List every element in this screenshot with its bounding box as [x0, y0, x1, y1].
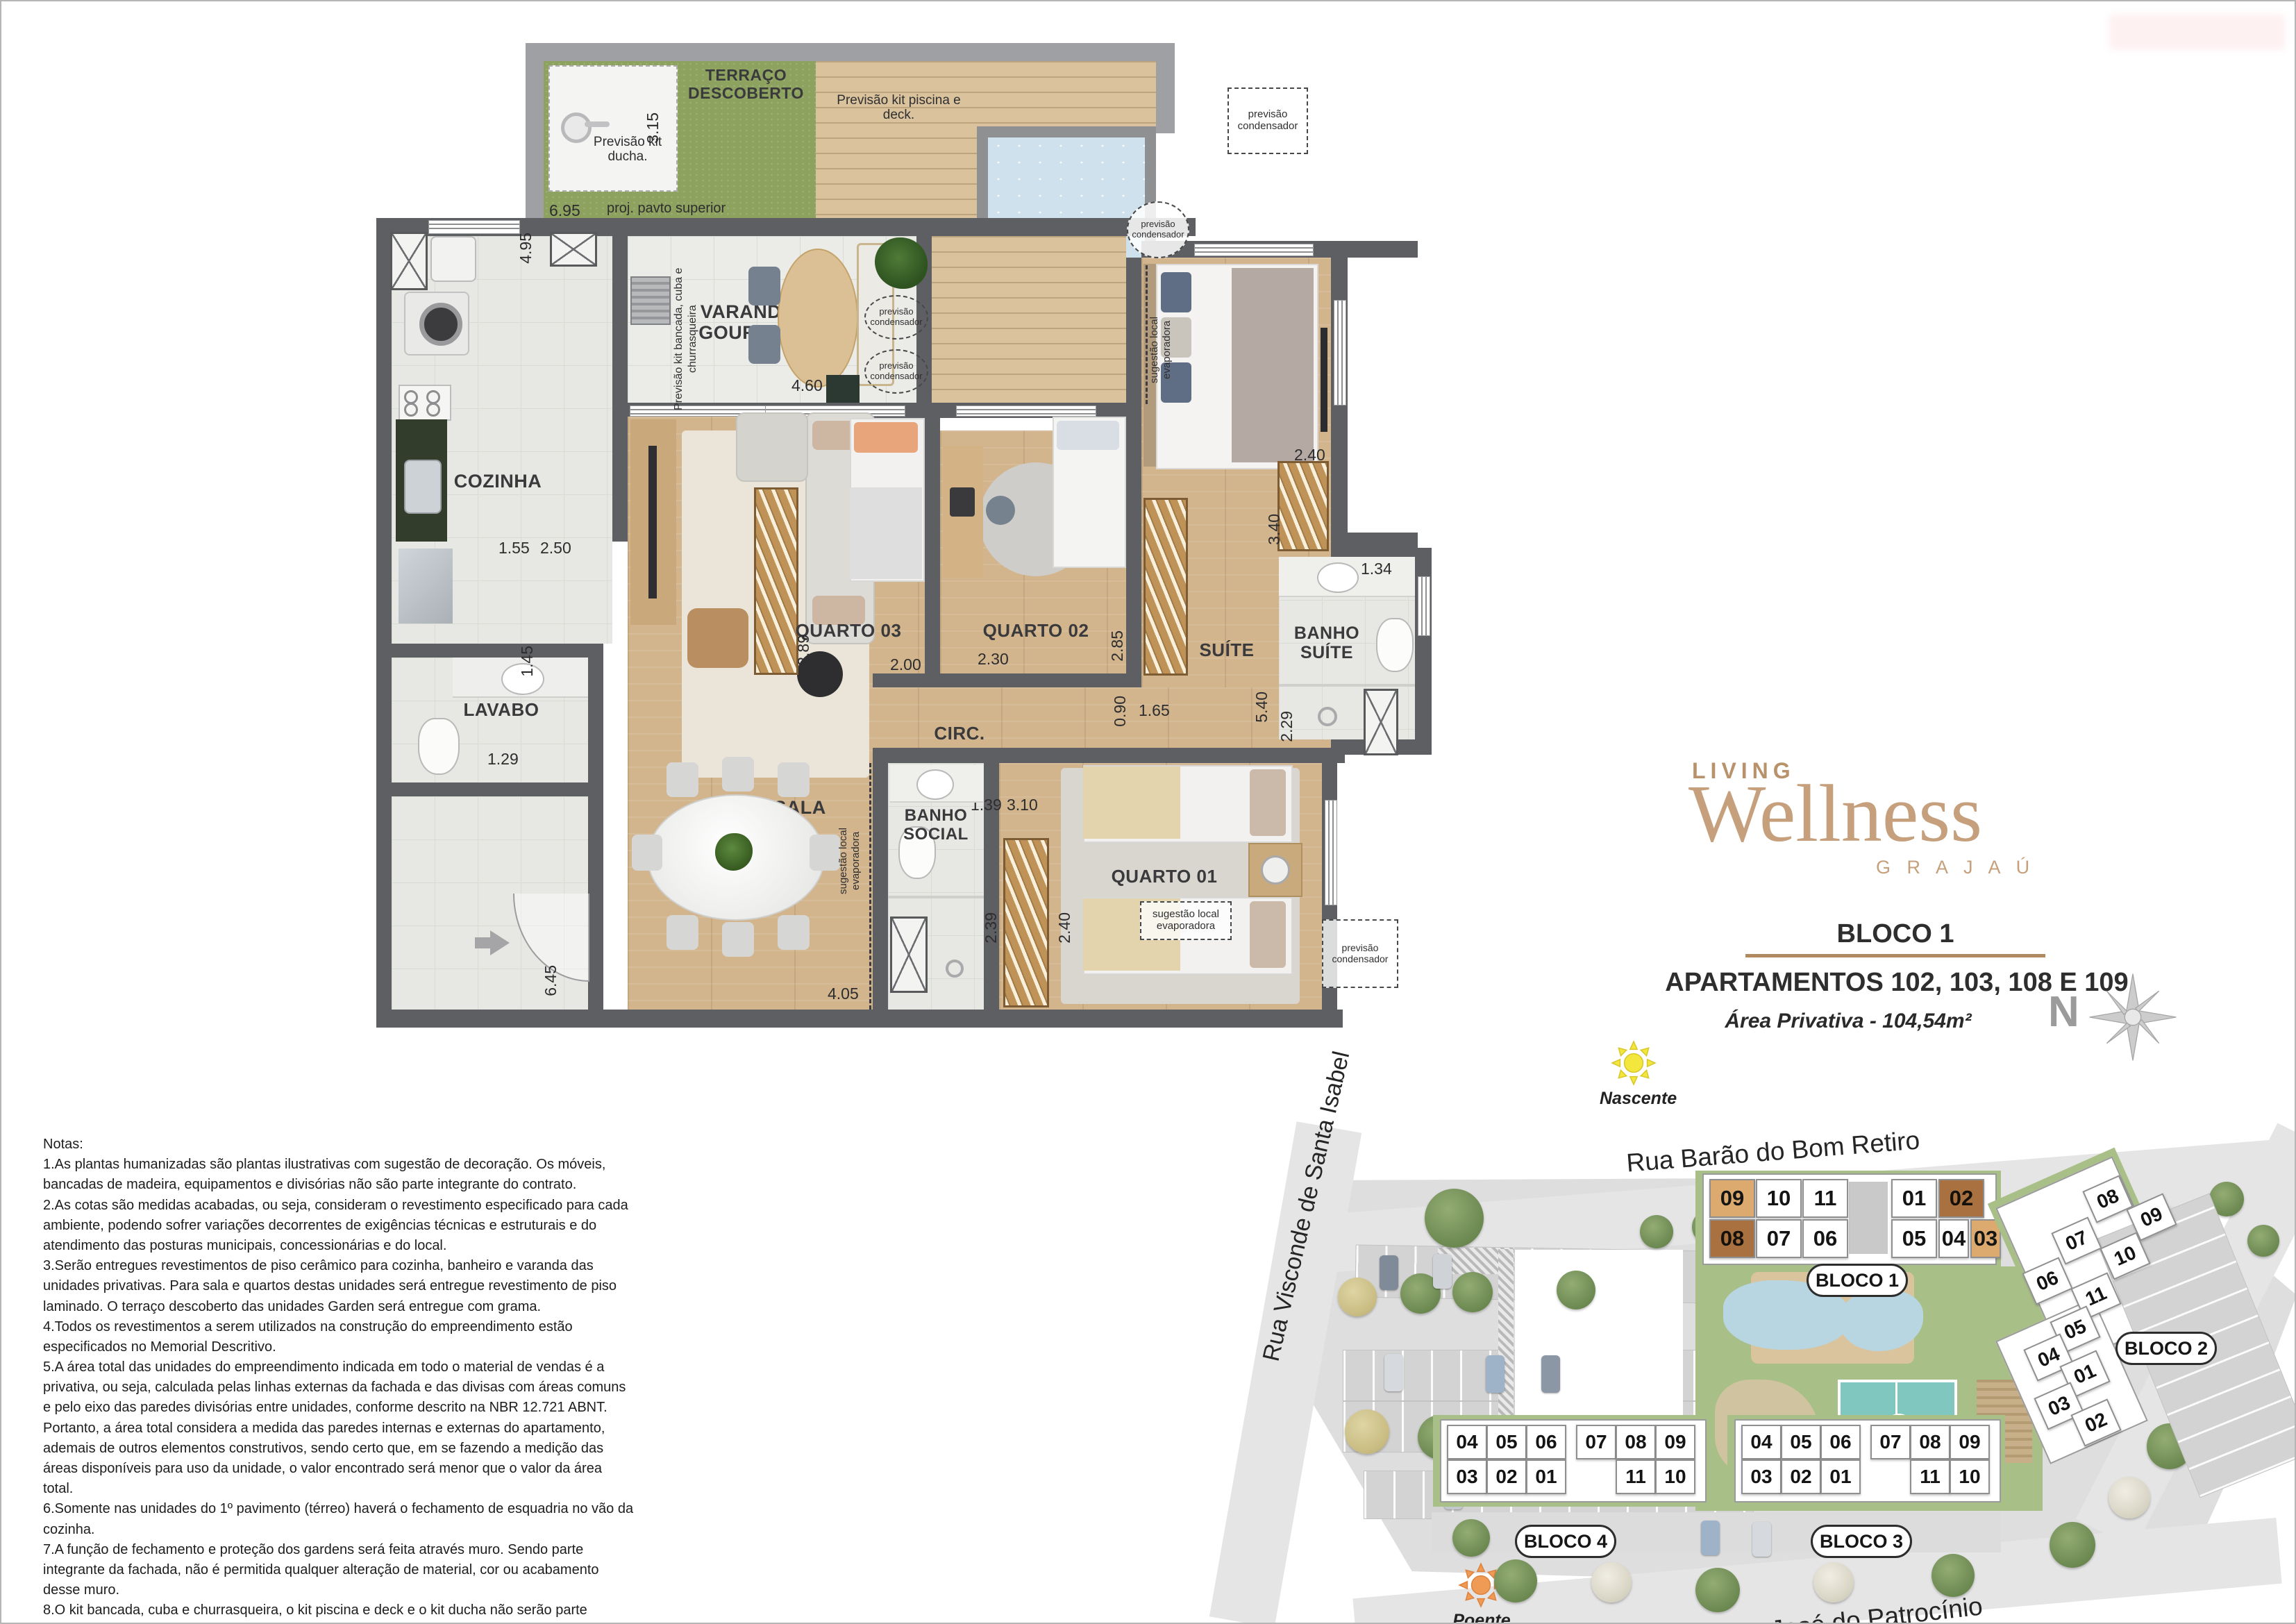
dim-sala-width: 4.05 [828, 985, 859, 1003]
note-item: 5.A área total das unidades do empreendi… [43, 1357, 635, 1499]
unit-10: 10 [1756, 1179, 1802, 1218]
unit-11: 11 [1616, 1459, 1656, 1494]
window [956, 405, 1096, 417]
closet [1003, 838, 1049, 1007]
wall [1126, 258, 1141, 687]
unit-label: 11 [1625, 1466, 1646, 1488]
unit-label: 08 [2093, 1184, 2122, 1214]
tree-icon [1494, 1559, 1537, 1602]
wall [1156, 43, 1175, 133]
unit-label: 04 [1456, 1431, 1477, 1453]
sink [916, 769, 954, 800]
divider [1279, 684, 1415, 687]
laundry-tank [430, 236, 476, 282]
kitchen-panel [399, 549, 453, 623]
chair [748, 325, 780, 364]
brochure-page: Previsão kit ducha. TERRAÇO DESCOBERTO 3… [0, 0, 2296, 1624]
condenser-note: previsão condensador [1327, 943, 1393, 964]
unit-label: 02 [2081, 1408, 2110, 1437]
tree-icon [1452, 1519, 1490, 1557]
dim-q3-width: 2.00 [890, 655, 921, 674]
unit-07: 07 [1870, 1425, 1911, 1459]
tree-icon [2050, 1522, 2095, 1568]
evaporator-area: sugestão local evaporadora [1140, 901, 1232, 940]
chair [986, 496, 1015, 525]
unit-06: 06 [1802, 1219, 1848, 1258]
chair [810, 835, 840, 871]
unit-label: 10 [1767, 1186, 1791, 1211]
wall [526, 43, 544, 236]
unit-label: 02 [1790, 1466, 1811, 1488]
unit-label: 01 [2070, 1359, 2099, 1389]
condenser-note: previsão condensador [1233, 109, 1302, 133]
proj-pavto-note: proj. pavto superior [607, 201, 726, 217]
notes-block: Notas: 1.As plantas humanizadas são plan… [43, 1135, 635, 1624]
toilet [418, 718, 460, 775]
plant-icon [875, 237, 928, 289]
evaporator-note: sugestão local evaporadora [837, 812, 862, 910]
unit-02: 02 [1938, 1179, 1984, 1218]
dim-lavabo-width: 1.29 [487, 750, 519, 769]
note-item: 6.Somente nas unidades do 1º pavimento (… [43, 1499, 635, 1539]
wall [376, 1010, 1343, 1028]
unit-label: 03 [1750, 1466, 1772, 1488]
burner-icon [426, 403, 440, 417]
dim-cozinha-height: 4.95 [517, 233, 535, 264]
car-icon [1384, 1354, 1403, 1391]
unit-label: 08 [1625, 1431, 1646, 1453]
wall [873, 748, 1345, 763]
unit-label: 04 [1942, 1226, 1966, 1251]
unit-10: 10 [1950, 1459, 1990, 1494]
unit-05: 05 [1486, 1425, 1527, 1459]
room-label-quarto01: QUARTO 01 [1098, 867, 1230, 887]
tree-icon [2109, 1477, 2150, 1518]
dim-sala-width2: 2.50 [540, 539, 571, 558]
unit-label: 02 [1495, 1466, 1517, 1488]
deck-floor [816, 61, 977, 219]
pillow [854, 422, 918, 453]
tree-icon [1932, 1554, 1975, 1597]
bloco1-pill: BLOCO 1 [1807, 1264, 1908, 1297]
dim-banho-suite-height: 2.29 [1277, 711, 1296, 742]
notes-title: Notas: [43, 1135, 635, 1155]
dim-banho-suite-width: 1.34 [1361, 560, 1392, 578]
bloco4-pill: BLOCO 4 [1515, 1525, 1616, 1558]
unit-01: 01 [1891, 1179, 1937, 1218]
room-label-quarto02: QUARTO 02 [973, 621, 1098, 641]
burner-icon [404, 390, 418, 404]
tree-icon [1640, 1215, 1673, 1248]
dim-banho-social-height: 2.39 [982, 912, 1000, 944]
tree-icon [1452, 1272, 1493, 1312]
window [428, 220, 520, 234]
unit-09: 09 [1655, 1425, 1695, 1459]
chair [778, 762, 810, 797]
bloco-pill-label: BLOCO 3 [1820, 1531, 1903, 1552]
unit-label: 06 [1813, 1226, 1837, 1251]
unit-08: 08 [1616, 1425, 1656, 1459]
closet [1277, 461, 1329, 551]
shower-arm-icon [585, 122, 610, 127]
shower-icon [946, 960, 964, 978]
unit-06: 06 [1526, 1425, 1566, 1459]
car-icon [1380, 1255, 1398, 1290]
car-icon [1541, 1355, 1560, 1393]
unit-label: 06 [1829, 1431, 1851, 1453]
unit-label: 05 [1790, 1431, 1811, 1453]
unit-08: 08 [1910, 1425, 1950, 1459]
shaft [890, 916, 928, 993]
varanda-table [778, 249, 858, 387]
room-label-cozinha: COZINHA [435, 471, 560, 492]
note-item: 8.O kit bancada, cuba e churrasqueira, o… [43, 1600, 635, 1624]
unit-06: 06 [1820, 1425, 1861, 1459]
dim-circ-width: 1.65 [1139, 701, 1170, 720]
tree-icon [1425, 1189, 1484, 1248]
evaporator-dashline [1146, 265, 1148, 404]
unit-11: 11 [1910, 1459, 1950, 1494]
blanket [850, 487, 922, 579]
unit-label: 06 [2033, 1266, 2061, 1296]
wall [588, 644, 603, 1026]
deck-floor-under-pool [932, 236, 1126, 403]
lamp-icon [1261, 855, 1290, 885]
unit-07: 07 [1576, 1425, 1616, 1459]
wall [376, 782, 588, 796]
sun-poente-label: Poente [1447, 1611, 1516, 1624]
unit-09: 09 [1709, 1179, 1755, 1218]
unit-label: 04 [2034, 1343, 2063, 1372]
car-icon [1701, 1521, 1720, 1555]
deck-floor [977, 61, 1156, 128]
unit-label: 10 [2111, 1241, 2139, 1271]
tv [1321, 328, 1327, 432]
dim-suite-height: 5.40 [1252, 692, 1271, 723]
logo-wellness: Wellness [1689, 767, 1982, 861]
unit-label: 09 [1664, 1431, 1686, 1453]
note-item: 1.As plantas humanizadas são plantas ilu… [43, 1155, 635, 1195]
unit-label: 02 [1950, 1186, 1973, 1211]
sink [1317, 562, 1359, 593]
condenser-area: previsão condensador [864, 295, 928, 340]
window [1325, 800, 1337, 905]
window [1418, 576, 1430, 636]
unit-04: 04 [1741, 1425, 1782, 1459]
private-area: Área Privativa - 104,54m² [1682, 1010, 2015, 1033]
wall [612, 403, 628, 542]
shaft [390, 232, 428, 290]
pillow [1250, 901, 1286, 968]
tree-icon [1338, 1278, 1377, 1316]
unit-label: 11 [1920, 1466, 1941, 1488]
unit-01: 01 [1820, 1459, 1861, 1494]
wall [376, 218, 392, 1028]
unit-01: 01 [1526, 1459, 1566, 1494]
chair [667, 915, 698, 950]
wall [376, 644, 603, 658]
bloco-pill-label: BLOCO 4 [1524, 1531, 1607, 1552]
chair [748, 267, 780, 305]
condenser-note: previsão condensador [869, 361, 924, 381]
dim-suite-closet-width: 2.40 [1294, 446, 1325, 464]
dim-suite-closet-height: 3.40 [1265, 514, 1284, 545]
unit-label: 10 [1664, 1466, 1686, 1488]
unit-label: 08 [1919, 1431, 1941, 1453]
blanket [1232, 268, 1314, 462]
chair [778, 915, 810, 950]
condenser-area: previsão condensador [1322, 919, 1398, 988]
unit-08: 08 [1709, 1219, 1755, 1258]
compass-n: N [2048, 987, 2079, 1037]
bloco-pill-label: BLOCO 2 [2125, 1338, 2208, 1359]
dim-varanda-width: 4.60 [791, 376, 823, 395]
dim-cozinha-width: 1.55 [498, 539, 530, 558]
tree-icon [2247, 1225, 2279, 1257]
wall [984, 748, 999, 1010]
dim-sala-height: 6.45 [542, 965, 560, 996]
unit-label: 01 [1902, 1186, 1926, 1211]
unit-label: 05 [1902, 1226, 1926, 1251]
unit-04: 04 [1938, 1219, 1969, 1258]
note-item: 3.Serão entregues revestimentos de piso … [43, 1256, 635, 1317]
armchair [687, 608, 748, 668]
unit-label: 08 [1720, 1226, 1744, 1251]
unit-07: 07 [1756, 1219, 1802, 1258]
unit-label: 07 [1879, 1431, 1901, 1453]
sofa-chaise [736, 412, 808, 482]
condenser-area: previsão condensador [864, 349, 928, 394]
divider [888, 896, 984, 898]
unit-03: 03 [1447, 1459, 1487, 1494]
wall [925, 417, 940, 687]
dim-lavabo-height: 1.45 [518, 646, 537, 677]
churrasqueira [630, 276, 671, 325]
tree-icon [1813, 1562, 1854, 1602]
unit-label: 09 [1720, 1186, 1744, 1211]
unit-label: 10 [1959, 1466, 1980, 1488]
tree-icon [1345, 1409, 1389, 1454]
dim-circ-height: 0.90 [1111, 696, 1130, 727]
tree-icon [1695, 1568, 1740, 1612]
closet [754, 487, 798, 675]
tree-icon [1591, 1562, 1632, 1602]
condenser-note: previsão condensador [869, 307, 924, 327]
unit-05: 05 [1891, 1219, 1937, 1258]
unit-09: 09 [1950, 1425, 1990, 1459]
unit-label: 01 [1535, 1466, 1557, 1488]
car-icon [1752, 1522, 1771, 1557]
dim-q1-width: 3.10 [1007, 796, 1038, 814]
car-icon [1433, 1254, 1452, 1289]
unit-03: 03 [1741, 1459, 1782, 1494]
room-label-suite: SUÍTE [1182, 640, 1272, 660]
burner-icon [404, 403, 418, 417]
entry-arrow-icon [475, 937, 490, 948]
faint-watermark [2109, 14, 2286, 50]
unit-label: 09 [1959, 1431, 1980, 1453]
entry-arrow-icon [490, 930, 510, 955]
unit-label: 11 [1814, 1186, 1837, 1211]
wall [526, 43, 1175, 61]
condenser-note: previsão condensador [1131, 219, 1185, 240]
note-item: 2.As cotas são medidas acabadas, ou seja… [43, 1196, 635, 1257]
toilet [1376, 618, 1414, 672]
evaporator-dashline [869, 763, 871, 1010]
dim-q2-width: 2.30 [978, 650, 1009, 669]
room-label-circ: CIRC. [918, 723, 1001, 744]
laptop-icon [950, 487, 975, 517]
bloco2-pill: BLOCO 2 [2115, 1332, 2217, 1365]
unit-label: 04 [1750, 1431, 1772, 1453]
bloco-pill-label: BLOCO 1 [1816, 1270, 1899, 1291]
chair [667, 762, 698, 797]
pillow [1250, 769, 1286, 836]
unit-04: 04 [1447, 1425, 1487, 1459]
bloco1-core [1849, 1182, 1888, 1254]
blanket [1083, 767, 1180, 839]
evaporator-note: sugestão local evaporadora [1144, 909, 1227, 932]
washer-door-icon [419, 303, 462, 346]
dim-q1-closet-height: 2.40 [1055, 912, 1074, 944]
chair [722, 757, 754, 792]
doormat [826, 375, 860, 403]
tree-icon [1557, 1271, 1595, 1309]
room-label-lavabo: LAVABO [439, 700, 564, 720]
window [1334, 300, 1346, 405]
unit-11: 11 [1802, 1179, 1848, 1218]
evaporator-note: sugestão local evaporadora [1148, 301, 1173, 399]
unit-05: 05 [1781, 1425, 1821, 1459]
unit-label: 03 [2045, 1391, 2073, 1421]
bloco3-pill: BLOCO 3 [1811, 1525, 1912, 1558]
car-icon [1486, 1355, 1505, 1393]
unit-label: 07 [1767, 1226, 1791, 1251]
unit-label: 05 [1495, 1431, 1517, 1453]
dim-q3-height: 2.89 [794, 635, 813, 666]
unit-label: 07 [2062, 1226, 2090, 1255]
unit-label: 03 [1974, 1226, 1997, 1251]
chair [722, 922, 754, 957]
shower-icon [1318, 707, 1337, 726]
bloco-title: BLOCO 1 [1745, 919, 2045, 949]
unit-label: 06 [1535, 1431, 1557, 1453]
unit-label: 03 [1456, 1466, 1477, 1488]
dim-terraco-width: 6.95 [549, 201, 580, 220]
unit-02: 02 [1486, 1459, 1527, 1494]
logo-grajau: G R A J A Ú [1876, 857, 2035, 878]
dim-q2-height: 2.85 [1108, 630, 1127, 662]
condenser-area: previsão condensador [1127, 201, 1189, 258]
shaft [1364, 689, 1398, 755]
unit-label: 09 [2137, 1203, 2165, 1232]
chair [632, 835, 662, 871]
unit-label: 07 [1585, 1431, 1607, 1453]
wall [873, 748, 888, 1010]
pillow [1057, 421, 1119, 450]
tv [648, 446, 657, 598]
unit-label: 05 [2061, 1315, 2089, 1344]
room-label-banho-suite: BANHO SUÍTE [1281, 623, 1373, 662]
kit-piscina-note: Previsão kit piscina e deck. [831, 93, 966, 123]
compass-rose-icon [2088, 972, 2178, 1062]
window [1194, 244, 1314, 256]
sun-nascente-label: Nascente [1600, 1089, 1669, 1109]
shaft [550, 232, 597, 267]
note-item: 7.A função de fechamento e proteção dos … [43, 1540, 635, 1601]
unit-10: 10 [1655, 1459, 1695, 1494]
note-item: 4.Todos os revestimentos a serem utiliza… [43, 1317, 635, 1357]
wall [612, 218, 628, 403]
unit-label: 01 [1829, 1466, 1851, 1488]
unit-02: 02 [1781, 1459, 1821, 1494]
condenser-area: previsão condensador [1227, 87, 1308, 154]
dim-terraco-height: 3.15 [644, 112, 662, 144]
burner-icon [426, 390, 440, 404]
sun-nascente-icon [1611, 1040, 1657, 1086]
title-rule [1745, 954, 2045, 957]
room-label-terraco: TERRAÇO DESCOBERTO [685, 67, 807, 103]
room-label-banho-social: BANHO SOCIAL [891, 807, 980, 844]
